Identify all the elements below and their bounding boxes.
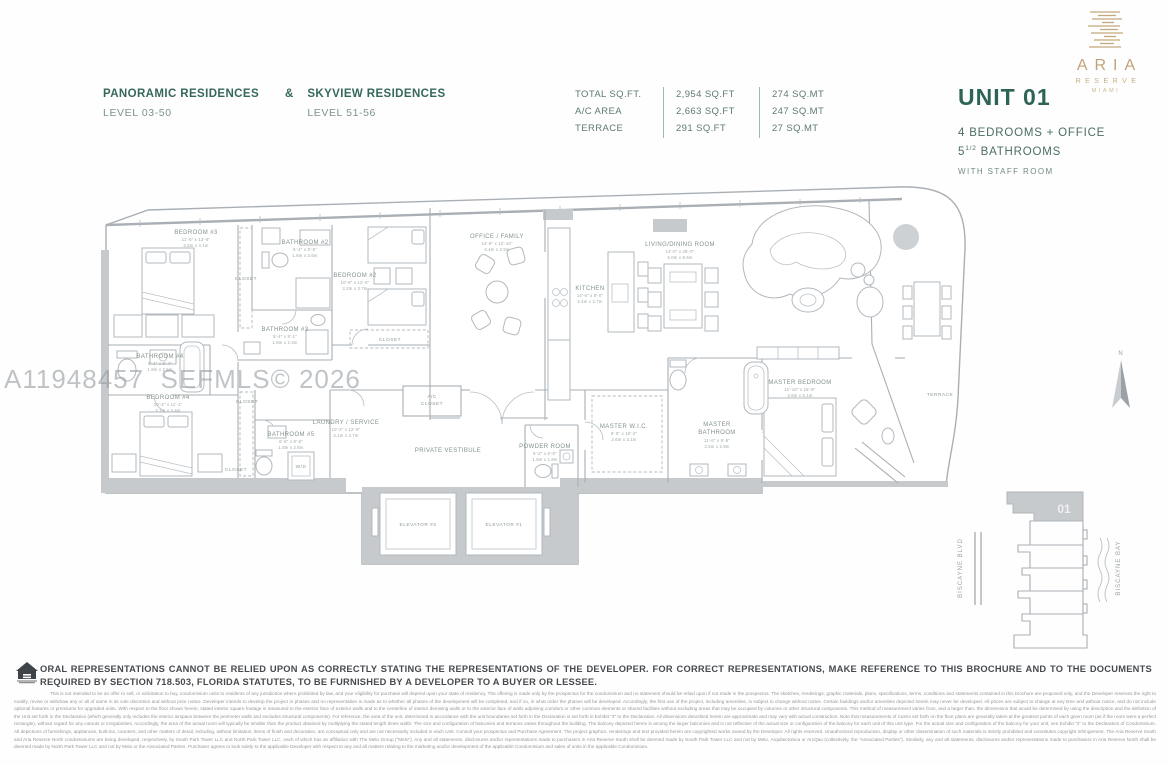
- svg-text:11'-6" x 9'-5": 11'-6" x 9'-5": [704, 438, 730, 443]
- svg-text:5'-4" x 8'-6": 5'-4" x 8'-6": [293, 247, 317, 252]
- keyplan-unit-highlight: [1007, 492, 1083, 521]
- svg-text:4.4m x 3.9m: 4.4m x 3.9m: [484, 247, 510, 252]
- svg-text:11'-10" x 16'-8": 11'-10" x 16'-8": [785, 387, 816, 392]
- ac-closet-label: A/C: [427, 394, 437, 400]
- room-label-living-dining: LIVING/DINING ROOM: [645, 242, 715, 248]
- key-plan: 01 BISCAYNE BLVD BISCAYNE BAY: [958, 492, 1122, 648]
- svg-text:14'-6" x 12'-10": 14'-6" x 12'-10": [481, 241, 513, 246]
- room-label-office: OFFICE / FAMILY: [470, 234, 524, 240]
- room-label-laundry: LAUNDRY / SERVICE: [313, 420, 380, 426]
- room-label-bathroom-5: BATHROOM #5: [268, 432, 315, 438]
- terrace-label: TERRACE: [927, 392, 953, 398]
- svg-text:8'-5" x 10'-2": 8'-5" x 10'-2": [611, 431, 638, 436]
- svg-text:3.1m x 3.4m: 3.1m x 3.4m: [155, 408, 181, 413]
- svg-text:10'-8" x 12'-0": 10'-8" x 12'-0": [341, 280, 370, 285]
- svg-text:6'-8" x 8'-6": 6'-8" x 8'-6": [279, 439, 303, 444]
- elevator-2-label: ELEVATOR #2: [400, 522, 437, 528]
- svg-text:10'-2" x 12'-6": 10'-2" x 12'-6": [332, 427, 361, 432]
- biscayne-bay-label: BISCAYNE BAY: [1116, 540, 1122, 595]
- svg-text:1.6m x 2.4m: 1.6m x 2.4m: [272, 340, 298, 345]
- closet-label: CLOSET: [379, 337, 401, 343]
- room-label-bathroom-4: BATHROOM #4: [137, 354, 184, 360]
- svg-text:3.5m x 4.1m: 3.5m x 4.1m: [183, 243, 209, 248]
- svg-text:3.5m x 2.9m: 3.5m x 2.9m: [704, 444, 730, 449]
- svg-text:2.6m x 3.1m: 2.6m x 3.1m: [611, 437, 637, 442]
- svg-text:13'-0" x 28'-0": 13'-0" x 28'-0": [666, 249, 695, 254]
- washer-dryer-label: W/D: [296, 464, 307, 470]
- svg-text:5'-4" x 8'-1": 5'-4" x 8'-1": [273, 334, 297, 339]
- svg-text:5'-2" x 6'-0": 5'-2" x 6'-0": [533, 451, 557, 456]
- closet-label: CLOSET: [235, 276, 257, 282]
- closet-label: CLOSET: [236, 399, 258, 405]
- svg-text:4.0m x 8.5m: 4.0m x 8.5m: [667, 255, 693, 260]
- svg-text:CLOSET: CLOSET: [421, 401, 443, 407]
- brochure-page: PANORAMIC RESIDENCES LEVEL 03-50 & SKYVI…: [0, 0, 1170, 765]
- svg-text:BATHROOM: BATHROOM: [698, 430, 735, 436]
- room-label-bedroom-2: BEDROOM #2: [333, 273, 377, 279]
- svg-text:1.8m x 2.6m: 1.8m x 2.6m: [278, 445, 304, 450]
- north-arrow-icon: N: [1112, 351, 1130, 408]
- room-label-bedroom-4: BEDROOM #4: [146, 395, 190, 401]
- svg-text:10'-2" x 11'-1": 10'-2" x 11'-1": [154, 402, 183, 407]
- elevator-1-label: ELEVATOR #1: [486, 522, 523, 528]
- svg-text:3.6m x 5.1m: 3.6m x 5.1m: [787, 393, 813, 398]
- svg-text:11'-6" x 13'-6": 11'-6" x 13'-6": [182, 237, 211, 242]
- vestibule-label: PRIVATE VESTIBULE: [415, 448, 481, 454]
- svg-text:14'-6" x 9'-0": 14'-6" x 9'-0": [577, 293, 604, 298]
- keyplan-unit-number: 01: [1057, 502, 1071, 516]
- closet-label: CLOSET: [225, 467, 247, 473]
- room-label-master-bedroom: MASTER BEDROOM: [768, 380, 831, 386]
- room-label-bedroom-3: BEDROOM #3: [174, 230, 218, 236]
- svg-text:1.6m x 1.8m: 1.6m x 1.8m: [532, 457, 558, 462]
- svg-text:3.1m x 3.7m: 3.1m x 3.7m: [333, 433, 359, 438]
- svg-text:4.4m x 2.7m: 4.4m x 2.7m: [577, 299, 603, 304]
- room-label-powder: POWDER ROOM: [519, 444, 571, 450]
- svg-text:1.6m x 2.6m: 1.6m x 2.6m: [292, 253, 318, 258]
- room-label-kitchen: KITCHEN: [575, 286, 604, 292]
- biscayne-blvd-label: BISCAYNE BLVD: [958, 538, 964, 598]
- room-label-master-wic: MASTER W.I.C.: [600, 424, 648, 430]
- room-label-bathroom-2: BATHROOM #2: [282, 240, 329, 246]
- room-label-bathroom-3: BATHROOM #3: [262, 327, 309, 333]
- room-label-master-bath: MASTER: [703, 422, 731, 428]
- column: [893, 224, 919, 250]
- north-label: N: [1118, 351, 1123, 357]
- svg-text:3.2m x 3.7m: 3.2m x 3.7m: [342, 286, 368, 291]
- mls-watermark: A11948457 SEFMLS© 2026: [4, 364, 361, 395]
